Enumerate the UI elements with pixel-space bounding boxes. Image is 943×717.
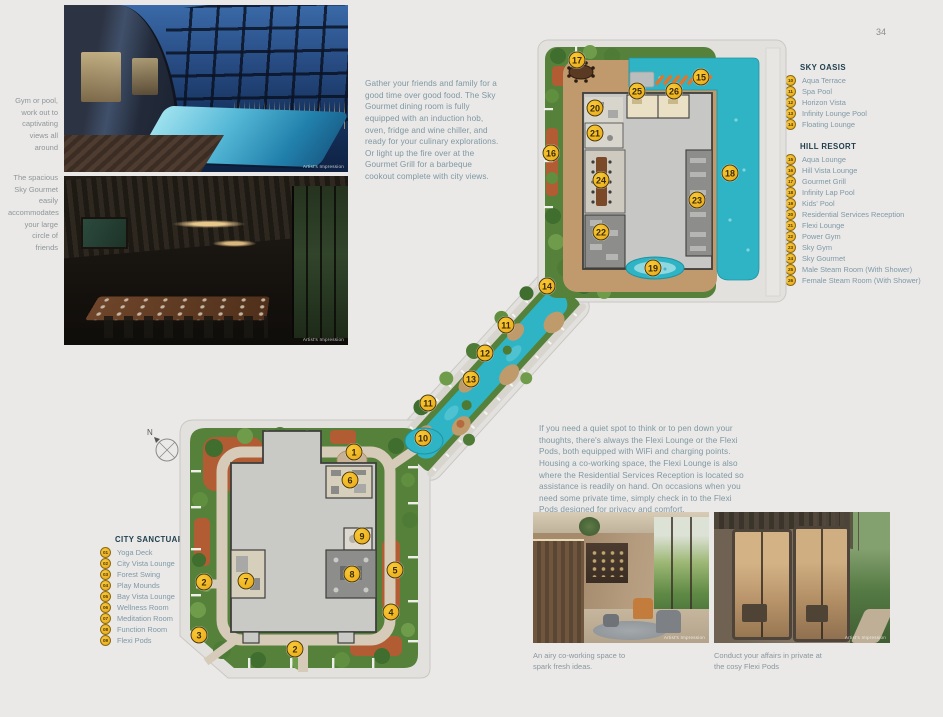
artist-impression-label: Artist's Impression: [303, 164, 344, 169]
site-plan-map: [0, 0, 943, 717]
compass-rose: N: [143, 424, 187, 473]
artist-impression-label: Artist's Impression: [845, 635, 886, 640]
brochure-page: { "page": { "number": "34" }, "left_colu…: [0, 0, 943, 717]
artist-impression-label: Artist's Impression: [664, 635, 705, 640]
compass-north-label: N: [147, 428, 153, 437]
artist-impression-label: Artist's Impression: [303, 337, 344, 342]
